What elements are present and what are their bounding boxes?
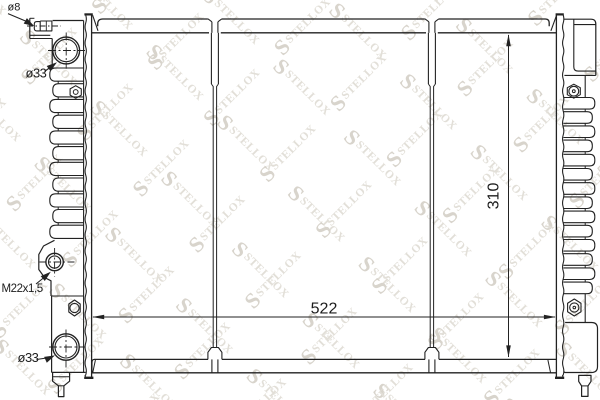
- svg-text:ø33: ø33: [26, 66, 47, 81]
- svg-text:522: 522: [311, 301, 338, 318]
- svg-text:ø33: ø33: [18, 350, 39, 365]
- svg-text:M22x1,5: M22x1,5: [2, 283, 43, 295]
- svg-text:310: 310: [486, 183, 503, 210]
- svg-text:ø8: ø8: [8, 2, 21, 14]
